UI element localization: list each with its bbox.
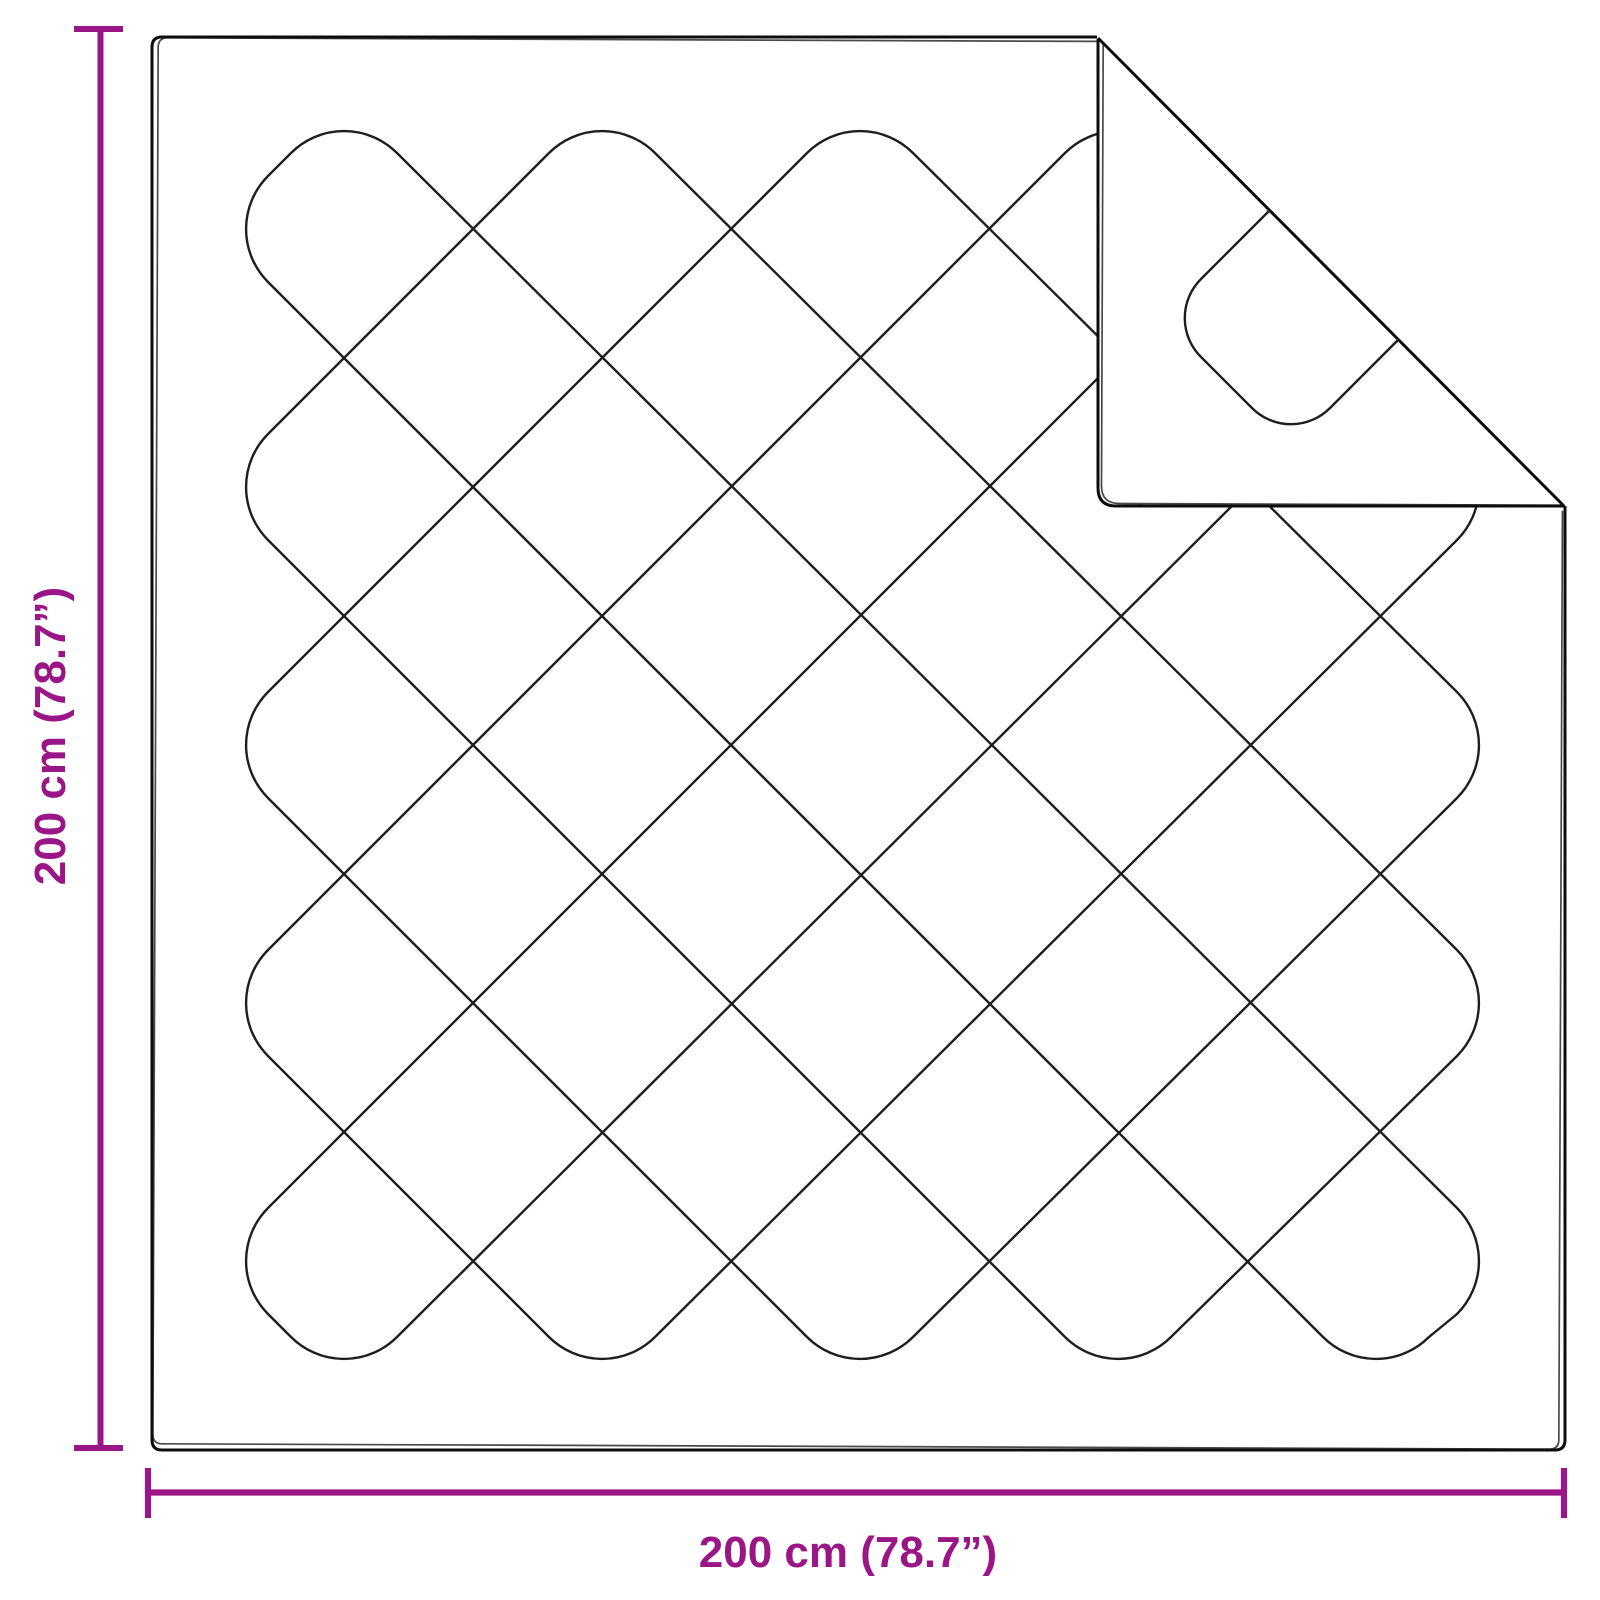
svg-text:200 cm (78.7”): 200 cm (78.7”) [26,587,75,885]
svg-text:200 cm (78.7”): 200 cm (78.7”) [699,1528,997,1577]
